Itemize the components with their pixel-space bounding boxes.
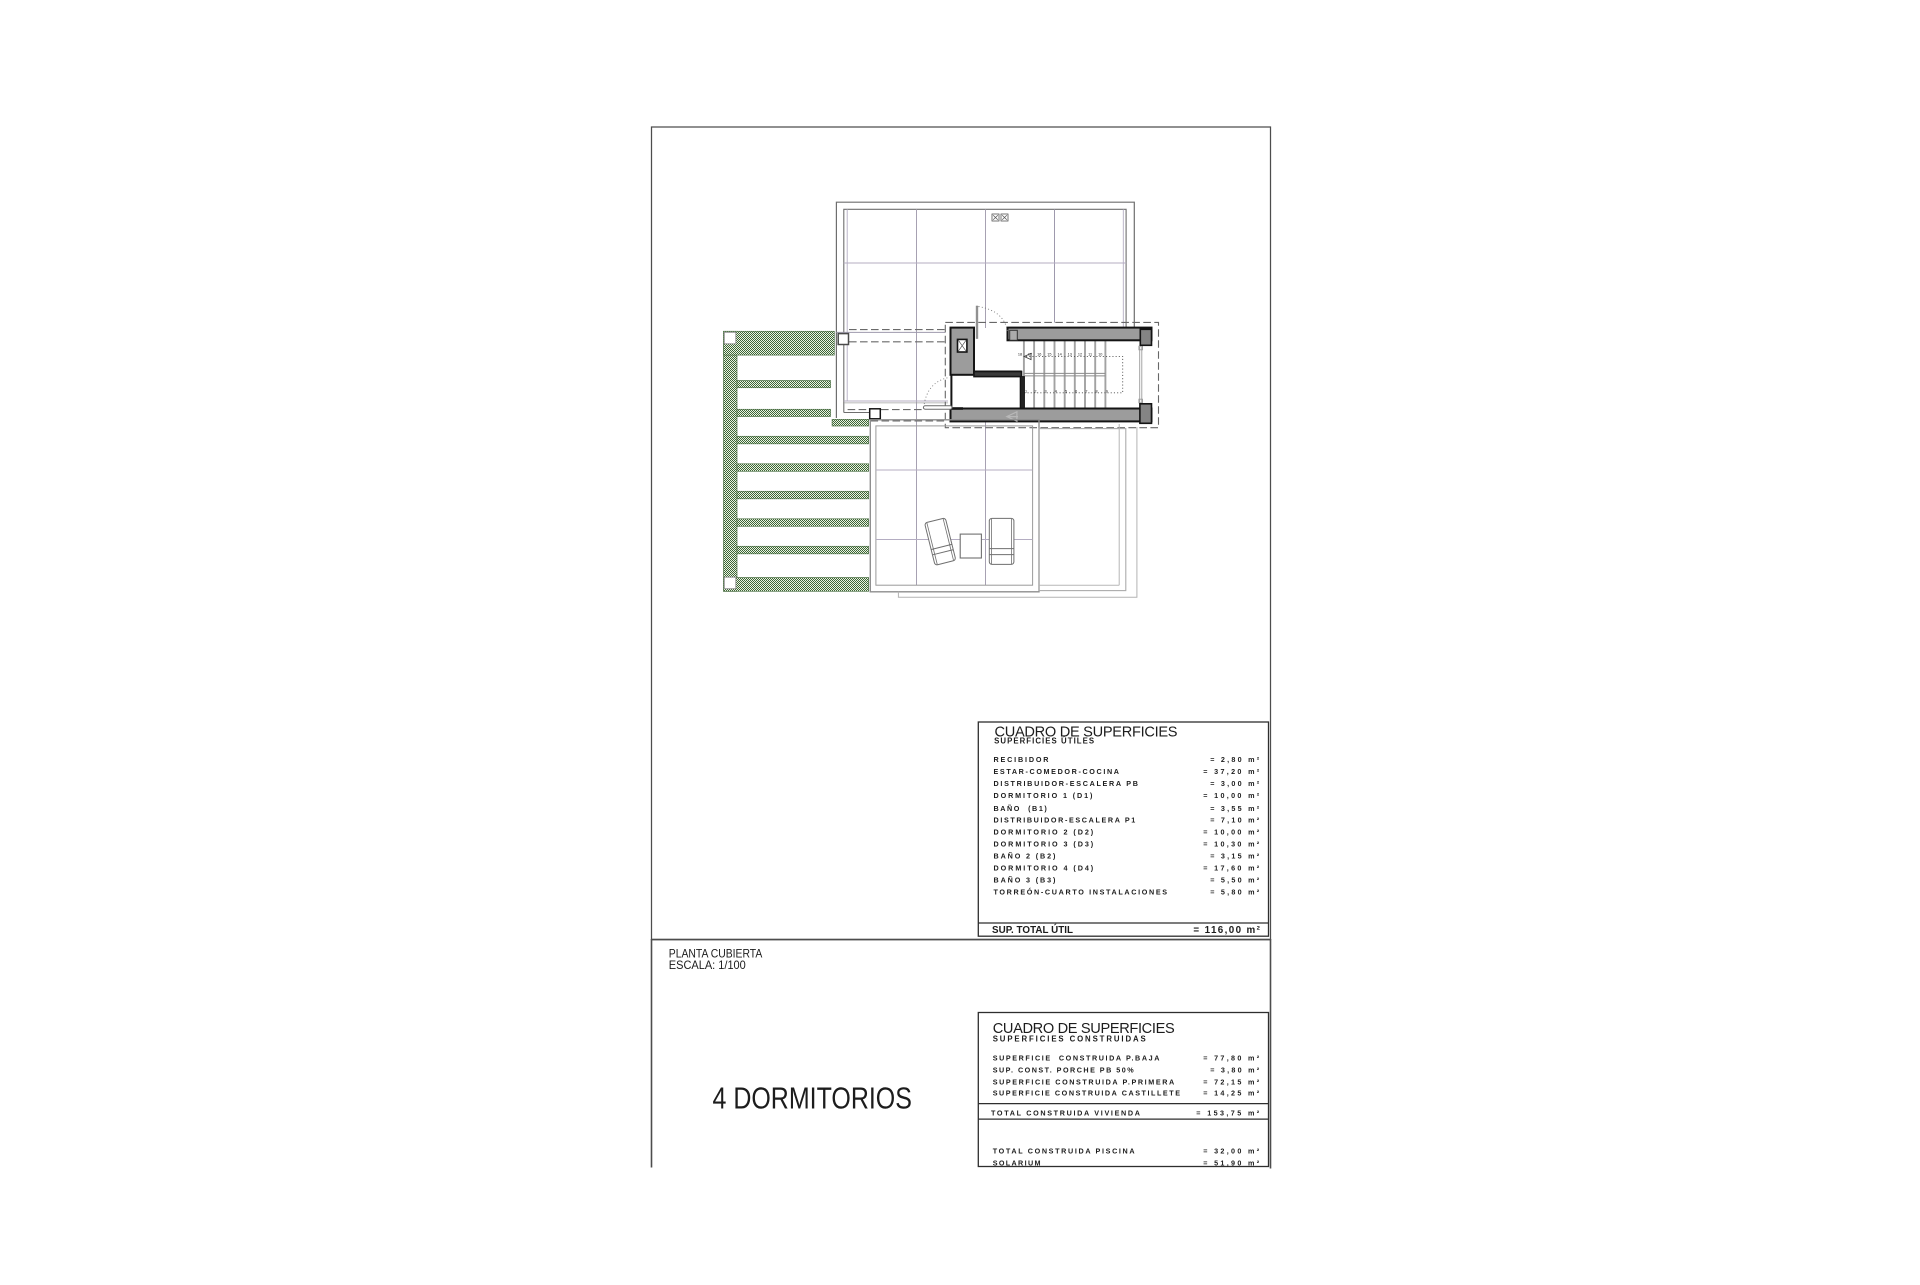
svg-text:= 10,00 m²: = 10,00 m² [1203,791,1259,800]
svg-text:2: 2 [1034,389,1036,393]
svg-text:1: 1 [1025,389,1027,393]
svg-text:TOTAL CONSTRUIDA PISCINA: TOTAL CONSTRUIDA PISCINA [993,1147,1135,1156]
svg-text:= 3,80 m²: = 3,80 m² [1210,1066,1260,1075]
svg-text:SUPERFICIES CONSTRUIDAS: SUPERFICIES CONSTRUIDAS [993,1035,1146,1044]
svg-text:SUP. CONST. PORCHE PB 50%: SUP. CONST. PORCHE PB 50% [993,1066,1134,1075]
svg-text:10: 10 [1098,352,1102,356]
svg-text:11: 11 [1088,352,1092,356]
svg-text:= 3,15 m²: = 3,15 m² [1210,852,1260,861]
svg-text:= 2,80 m²: = 2,80 m² [1210,755,1260,764]
svg-text:= 72,15 m²: = 72,15 m² [1203,1078,1260,1087]
svg-text:= 10,00 m²: = 10,00 m² [1203,828,1259,837]
svg-text:= 32,00 m²: = 32,00 m² [1203,1147,1260,1156]
svg-text:= 37,20 m²: = 37,20 m² [1203,767,1259,776]
svg-text:17: 17 [1028,352,1032,356]
svg-text:= 3,00 m²: = 3,00 m² [1210,779,1260,788]
svg-text:12: 12 [1078,352,1082,356]
svg-text:DORMITORIO 4 (D4): DORMITORIO 4 (D4) [994,864,1094,873]
svg-text:18: 18 [1018,352,1022,356]
svg-text:RECIBIDOR: RECIBIDOR [994,755,1050,764]
svg-text:5: 5 [1065,389,1067,393]
svg-text:16: 16 [1037,352,1041,356]
svg-text:DORMITORIO 1 (D1): DORMITORIO 1 (D1) [994,791,1093,800]
svg-text:= 77,80 m²: = 77,80 m² [1203,1054,1260,1063]
svg-text:DORMITORIO 2 (D2): DORMITORIO 2 (D2) [994,828,1094,837]
svg-text:3: 3 [1045,389,1047,393]
svg-text:= 17,60 m²: = 17,60 m² [1203,864,1259,873]
svg-text:4: 4 [1055,389,1057,393]
svg-text:13: 13 [1068,352,1072,356]
svg-text:ESCALA: 1/100: ESCALA: 1/100 [669,958,746,972]
svg-text:15: 15 [1047,352,1051,356]
svg-text:SUP. TOTAL ÚTIL: SUP. TOTAL ÚTIL [992,924,1073,936]
svg-text:SUPERFICIE CONSTRUIDA P.BAJA: SUPERFICIE CONSTRUIDA P.BAJA [993,1054,1160,1063]
svg-text:DORMITORIO 3 (D3): DORMITORIO 3 (D3) [994,840,1094,849]
svg-text:14: 14 [1057,352,1061,356]
svg-text:8: 8 [1096,389,1098,393]
svg-text:CUADRO DE SUPERFICIES: CUADRO DE SUPERFICIES [993,1021,1175,1037]
svg-text:= 10,30 m²: = 10,30 m² [1203,840,1259,849]
svg-text:= 5,50 m²: = 5,50 m² [1210,876,1260,885]
svg-text:TORREÓN-CUARTO INSTALACIONES: TORREÓN-CUARTO INSTALACIONES [994,888,1168,897]
svg-text:= 51,90 m²: = 51,90 m² [1203,1159,1260,1168]
svg-text:6: 6 [1075,389,1077,393]
svg-text:BAÑO (B1): BAÑO (B1) [994,804,1048,813]
svg-text:7: 7 [1085,389,1087,393]
svg-text:= 7,10 m²: = 7,10 m² [1210,816,1260,825]
svg-text:4 DORMITORIOS: 4 DORMITORIOS [713,1081,912,1115]
svg-text:= 14,25 m²: = 14,25 m² [1203,1089,1260,1098]
svg-text:SUPERFICIES ÚTILES: SUPERFICIES ÚTILES [994,737,1094,746]
svg-text:= 5,80 m²: = 5,80 m² [1210,888,1260,897]
svg-text:= 3,55 m²: = 3,55 m² [1210,804,1260,813]
svg-text:9: 9 [1106,389,1108,393]
